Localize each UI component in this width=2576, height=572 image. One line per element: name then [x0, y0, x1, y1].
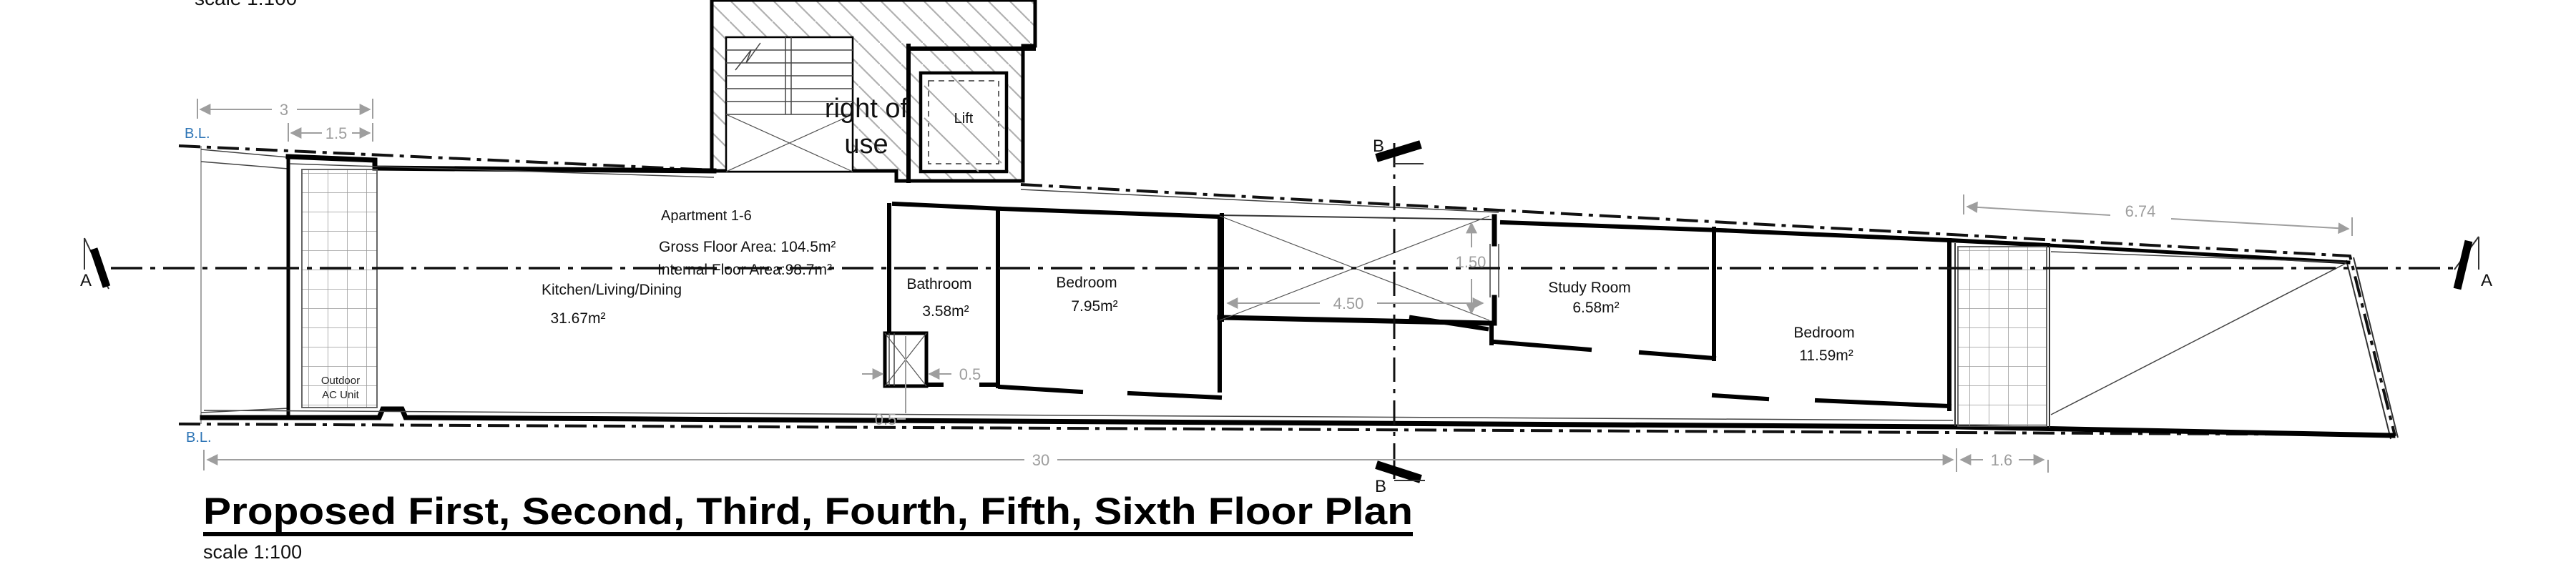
bedroom2-label: Bedroom	[1793, 325, 1854, 341]
interior-walls	[885, 205, 2346, 428]
section-marker-a-right: A	[2454, 237, 2492, 290]
bedroom2-area: 11.59m²	[1799, 347, 1853, 364]
courtyard-shaft	[1220, 215, 1499, 343]
floor-plan-sheet: Lift right of use	[0, 0, 2576, 572]
study-area: 6.58m²	[1572, 300, 1619, 316]
dim-left-offset: 3	[280, 101, 288, 119]
dim-overall-length: 30	[1032, 451, 1049, 469]
apartment-name: Apartment 1-6	[661, 208, 752, 224]
bedroom1-label: Bedroom	[1056, 275, 1117, 291]
apartment-info: Apartment 1-6 Gross Floor Area: 104.5m² …	[657, 208, 836, 278]
stair-lift-block: Lift right of use	[712, 0, 1035, 181]
sheet-scale: scale 1:100	[203, 541, 302, 563]
section-marker-a-left: A	[80, 238, 109, 290]
study-label: Study Room	[1548, 280, 1631, 296]
apartment-internal-area: Internal Floor Area:98.7m²	[657, 262, 832, 278]
outdoor-ac-label-1: Outdoor	[321, 375, 360, 387]
right-of-use-line2: use	[844, 129, 888, 159]
dim-terrace-length: 6.74	[2125, 202, 2156, 220]
section-letter-a-right: A	[2481, 271, 2492, 290]
boundary-labels: B.L. B.L.	[185, 126, 212, 445]
dim-courtyard-width: 4.50	[1333, 295, 1364, 312]
section-marker-b-top: B	[1373, 137, 1424, 164]
floor-plan-drawing: Lift right of use	[0, 0, 2576, 572]
sheet-title: Proposed First, Second, Third, Fourth, F…	[203, 490, 1413, 533]
lift-shaft: Lift	[921, 73, 1007, 172]
kitchen-label: Kitchen/Living/Dining	[542, 282, 682, 298]
room-labels: Kitchen/Living/Dining 31.67m² Bathroom 3…	[542, 275, 1855, 364]
kitchen-area: 31.67m²	[550, 310, 605, 327]
bedroom1-area: 7.95m²	[1071, 298, 1117, 315]
section-letter-a-left: A	[80, 271, 92, 290]
dim-terrace-width: 1.6	[1991, 451, 2013, 469]
bathroom-label: Bathroom	[906, 276, 971, 292]
dim-shaft-width: 0.5	[959, 365, 981, 383]
outdoor-ac-terrace: Outdoor AC Unit	[302, 169, 377, 408]
dim-left-offset-inner: 1.5	[325, 124, 348, 142]
title-block: Proposed First, Second, Third, Fourth, F…	[203, 490, 1413, 563]
boundary-label-bottom: B.L.	[186, 430, 212, 445]
right-terrace-tiles	[1958, 247, 2047, 426]
lift-label: Lift	[954, 111, 974, 127]
apartment-gross-area: Gross Floor Area: 104.5m²	[659, 239, 836, 255]
outdoor-ac-label-2: AC Unit	[322, 389, 360, 401]
right-of-use-line1: right of	[825, 94, 909, 124]
boundary-label-top: B.L.	[185, 126, 210, 142]
dim-courtyard-window: 1.50	[1456, 253, 1487, 271]
clipped-scale-note: scale 1:100	[195, 0, 297, 9]
dim-shaft-height: 0.5	[875, 410, 897, 428]
section-letter-b-top: B	[1373, 137, 1384, 156]
bathroom-area: 3.58m²	[922, 303, 969, 320]
site-boundary	[179, 146, 2398, 439]
